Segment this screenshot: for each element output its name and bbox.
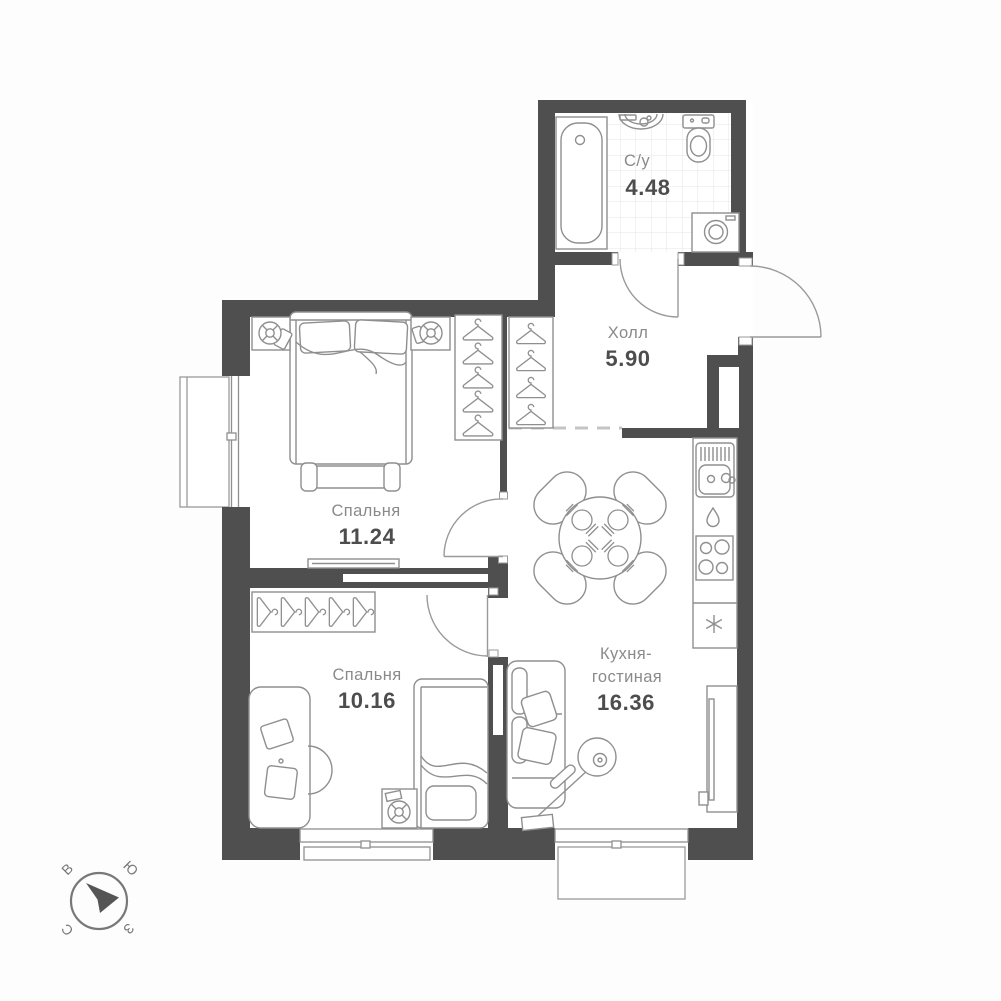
- compass-west-label: З: [120, 920, 137, 937]
- room-label-kitchen: Кухня- гостиная 16.36: [592, 645, 662, 715]
- wardrobe-bedroom-top-icon: [455, 315, 502, 440]
- wardrobe-hall-icon: [509, 317, 553, 428]
- bathroom-area: 4.48: [625, 175, 670, 200]
- kitchen-counter-icon: [693, 438, 737, 648]
- room-label-bedroom-top: Спальня 11.24: [331, 502, 400, 549]
- single-bed-icon: [414, 679, 488, 828]
- dresser-icon: [308, 559, 399, 568]
- door-entrance: [750, 266, 821, 337]
- hall-name: Холл: [608, 324, 649, 342]
- compass-arrow-icon: [86, 883, 119, 913]
- toilet-icon: [683, 115, 714, 162]
- nightstand-bottom-icon: [382, 789, 417, 828]
- wardrobe-bedroom-bottom-icon: [252, 592, 375, 632]
- ventilation-shaft: [719, 367, 739, 428]
- bathroom-name: С/у: [624, 152, 650, 170]
- nightstand-right-icon: [411, 317, 450, 350]
- hall-area: 5.90: [605, 346, 650, 371]
- nightstand-left-icon: [252, 317, 293, 350]
- floor-plan-canvas: С/у 4.48 Холл 5.90 Спальня 11.24 Спальня…: [0, 0, 1001, 1001]
- bedroom-top-name: Спальня: [331, 502, 400, 520]
- kitchen-name-line1: Кухня-: [600, 645, 652, 663]
- bed-bench-icon: [301, 463, 400, 491]
- compass-east-label: В: [58, 860, 76, 878]
- compass-rose: В Ю З С: [58, 857, 142, 939]
- bathtub-icon: [556, 117, 607, 249]
- desk-icon: [249, 687, 310, 828]
- compass-north-label: С: [58, 921, 76, 939]
- bedroom-top-area: 11.24: [339, 524, 396, 549]
- double-bed-icon: [290, 312, 412, 464]
- balcony-left: [180, 377, 229, 507]
- room-label-hall: Холл 5.90: [605, 324, 650, 371]
- side-table-icon: [521, 814, 553, 830]
- room-label-bedroom-bottom: Спальня 10.16: [332, 666, 401, 713]
- washing-machine-icon: [692, 213, 739, 252]
- bedroom-bottom-area: 10.16: [338, 688, 396, 713]
- balcony-bottom: [558, 847, 685, 899]
- bedroom-bottom-name: Спальня: [332, 666, 401, 684]
- floor-plan: С/у 4.48 Холл 5.90 Спальня 11.24 Спальня…: [0, 0, 1001, 1001]
- compass-south-label: Ю: [120, 857, 141, 878]
- kitchen-name-line2: гостиная: [592, 668, 662, 686]
- kitchen-area: 16.36: [597, 690, 655, 715]
- dining-table-icon: [559, 497, 641, 579]
